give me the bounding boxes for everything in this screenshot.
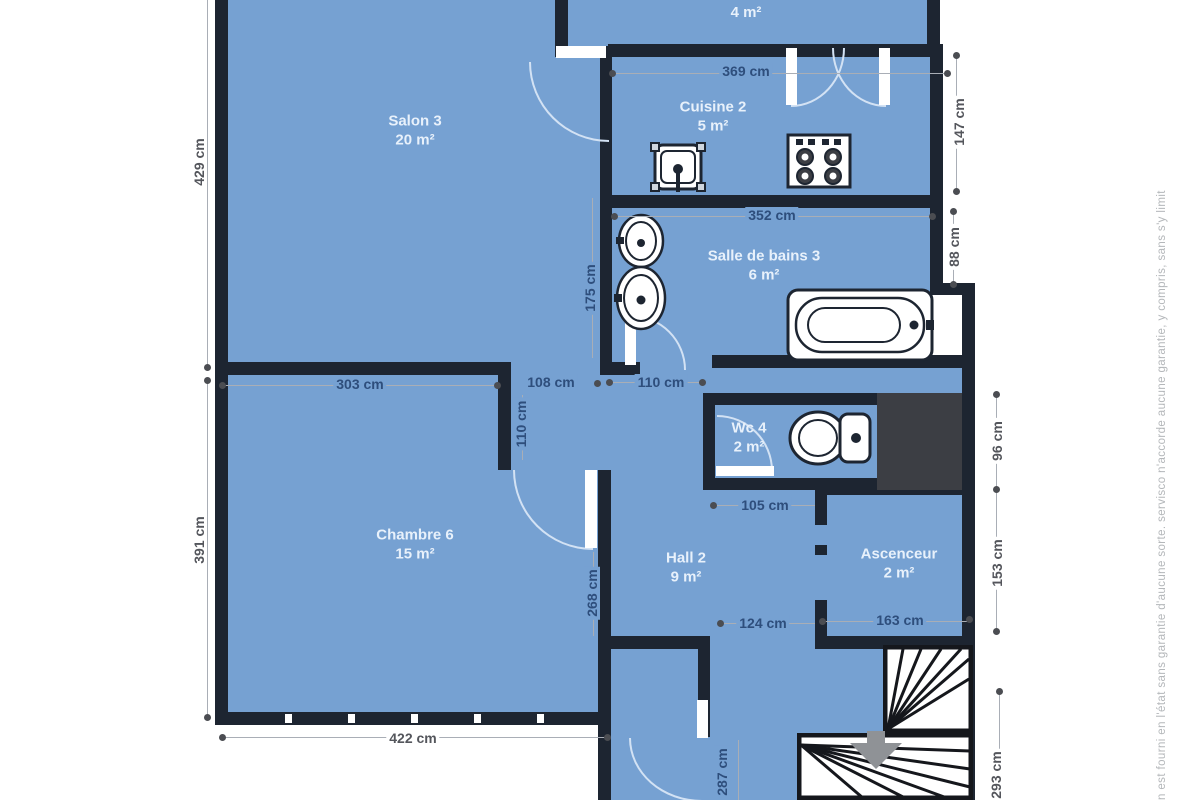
dim-dot	[819, 618, 826, 625]
stove-icon	[786, 133, 852, 189]
dimension-369cm: 369 cm	[719, 63, 772, 79]
dimension-line	[207, 380, 208, 718]
dimension-153cm: 153 cm	[989, 536, 1005, 589]
toilet-icon	[786, 406, 878, 470]
room-label-hall-2: Hall 2 9 m²	[666, 549, 706, 587]
dimension-391cm: 391 cm	[191, 513, 207, 566]
dimension-line	[738, 740, 739, 800]
dim-dot	[204, 377, 211, 384]
door-leaf-cuisine-left	[786, 48, 797, 105]
room-label-wc-4: Wc 4 2 m²	[731, 419, 766, 457]
dim-dot	[606, 379, 613, 386]
room-area: 2 m²	[731, 438, 766, 457]
room-area: 6 m²	[708, 266, 821, 285]
dim-dot	[594, 380, 601, 387]
dimension-88cm: 88 cm	[946, 224, 962, 270]
room-area: 9 m²	[666, 568, 706, 587]
dimension-line	[207, 0, 208, 368]
dim-dot	[950, 281, 957, 288]
dimension-422cm: 422 cm	[386, 730, 439, 746]
dim-dot	[609, 70, 616, 77]
room-area: 20 m²	[388, 131, 441, 150]
room-label-salon-top: Salon 4 m²	[726, 0, 767, 23]
dim-dot	[611, 213, 618, 220]
dim-dot	[219, 382, 226, 389]
dimension-line	[612, 73, 950, 74]
dimension-352cm: 352 cm	[745, 207, 798, 223]
room-name: Salle de bains 3	[708, 247, 821, 266]
room-area: 4 m²	[726, 4, 767, 23]
wall-salon-top-bottom	[608, 44, 940, 57]
disclaimer-text: n est fourni en l'état sans garantie d'a…	[1156, 0, 1168, 800]
dim-dot	[953, 188, 960, 195]
dimension-268cm: 268 cm	[584, 566, 600, 619]
dimension-293cm: 293 cm	[988, 748, 1004, 800]
wall-wc-top	[703, 393, 877, 405]
door-leaf-wc	[716, 466, 774, 476]
dim-dot	[993, 391, 1000, 398]
room-name: Hall 2	[666, 549, 706, 568]
room-area: 5 m²	[680, 117, 747, 136]
wall-salon3-chambre	[215, 362, 502, 375]
room-label-ascenceur: Ascenceur 2 m²	[861, 545, 938, 583]
dim-dot	[966, 616, 973, 623]
dimension-96cm: 96 cm	[989, 418, 1005, 464]
dimension-287cm: 287 cm	[714, 745, 730, 798]
door-leaf-chambre	[585, 470, 597, 548]
room-label-cuisine-2: Cuisine 2 5 m²	[680, 98, 747, 136]
dim-dot	[204, 364, 211, 371]
dimension-147cm: 147 cm	[951, 95, 967, 148]
dim-dot	[204, 714, 211, 721]
dim-dot	[699, 379, 706, 386]
door-leaf-entry	[697, 700, 708, 738]
dim-dot	[710, 502, 717, 509]
dim-dot	[950, 208, 957, 215]
dimension-110cm-v: 110 cm	[513, 398, 529, 451]
dim-dot	[993, 628, 1000, 635]
room-name: Ascenceur	[861, 545, 938, 564]
wall-ascenceur-left-b	[815, 545, 827, 555]
door-leaf-salon3-top	[556, 46, 606, 58]
dim-dot	[604, 734, 611, 741]
room-label-chambre-6: Chambre 6 15 m²	[376, 526, 454, 564]
room-label-salon-3: Salon 3 20 m²	[388, 112, 441, 150]
wall-hall-bottom-left	[598, 636, 710, 649]
dimension-110cm-h: 110 cm	[635, 374, 688, 390]
door-leaf-cuisine-right	[879, 48, 890, 105]
shaft-area	[877, 393, 962, 490]
room-name: Wc 4	[731, 419, 766, 438]
room-area: 2 m²	[861, 564, 938, 583]
window-dashes	[285, 714, 600, 723]
washbasin-icon	[616, 212, 666, 270]
dimension-163cm: 163 cm	[873, 612, 926, 628]
wall-cuisine-right	[930, 44, 943, 208]
wall-ascenceur-left-a	[815, 483, 827, 525]
room-name: Chambre 6	[376, 526, 454, 545]
room-area: 15 m²	[376, 545, 454, 564]
dimension-175cm: 175 cm	[582, 261, 598, 314]
floor-plan: 429 cm 391 cm 422 cm 369 cm 147 cm 352 c…	[0, 0, 1200, 800]
dimension-124cm: 124 cm	[736, 615, 789, 631]
washbasin-icon	[614, 264, 668, 332]
dim-dot	[494, 382, 501, 389]
room-salon-3	[228, 0, 555, 363]
stairs-upper-icon	[883, 645, 973, 733]
dim-dot	[944, 70, 951, 77]
wall-stub-vertical	[498, 362, 511, 470]
room-name: Cuisine 2	[680, 98, 747, 117]
room-name: Salon 3	[388, 112, 441, 131]
dim-dot	[953, 52, 960, 59]
stairs-down-arrow-icon	[850, 731, 902, 769]
dimension-108cm: 108 cm	[524, 374, 577, 390]
dimension-303cm: 303 cm	[333, 376, 386, 392]
room-label-salle-de-bains-3: Salle de bains 3 6 m²	[708, 247, 821, 285]
dim-dot	[996, 688, 1003, 695]
wall-chambre-right	[598, 470, 611, 800]
dim-dot	[717, 620, 724, 627]
dim-dot	[929, 213, 936, 220]
dimension-429cm: 429 cm	[191, 135, 207, 188]
bathtub-icon	[786, 288, 934, 362]
dim-dot	[219, 734, 226, 741]
kitchen-sink-icon	[648, 140, 708, 196]
dimension-105cm: 105 cm	[738, 497, 791, 513]
wall-wc-left	[703, 393, 715, 478]
dim-dot	[993, 486, 1000, 493]
